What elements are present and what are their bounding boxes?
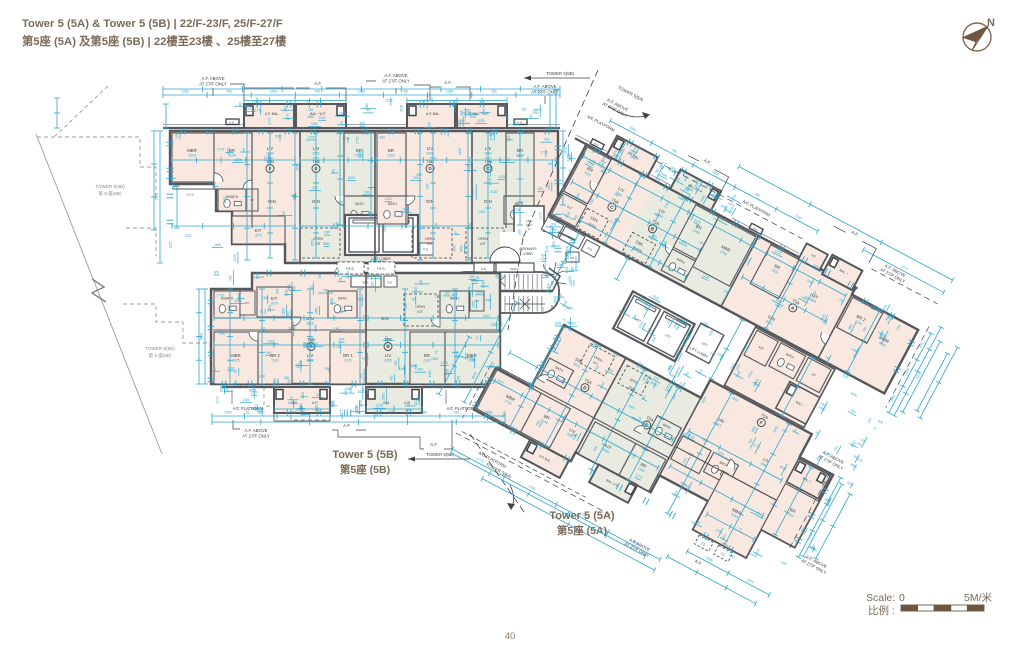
svg-text:2100: 2100 [399, 105, 403, 112]
svg-text:2100: 2100 [456, 351, 460, 358]
svg-text:2650: 2650 [491, 323, 498, 327]
svg-text:1960: 1960 [399, 367, 406, 371]
svg-text:2300: 2300 [382, 393, 386, 400]
svg-text:2325: 2325 [232, 359, 240, 363]
svg-text:A.F.: A.F. [314, 81, 321, 86]
svg-text:2650: 2650 [452, 244, 456, 251]
svg-text:430: 430 [247, 107, 253, 111]
svg-text:2650: 2650 [299, 403, 303, 410]
svg-text:250: 250 [324, 231, 330, 235]
svg-text:1960: 1960 [218, 331, 225, 335]
svg-text:2100: 2100 [569, 238, 576, 242]
svg-text:745: 745 [435, 295, 441, 299]
svg-text:1333: 1333 [565, 266, 569, 273]
svg-text:1775: 1775 [489, 133, 493, 140]
svg-text:M.BATH: M.BATH [226, 195, 239, 199]
svg-text:1333: 1333 [483, 314, 490, 318]
svg-text:1960: 1960 [446, 90, 454, 94]
svg-text:2650: 2650 [552, 241, 556, 248]
svg-text:1775: 1775 [268, 118, 272, 125]
svg-text:1775: 1775 [422, 99, 429, 103]
svg-text:2300: 2300 [188, 154, 196, 158]
svg-text:250: 250 [444, 291, 450, 295]
svg-text:300: 300 [551, 222, 557, 226]
svg-text:3650: 3650 [314, 307, 318, 314]
svg-text:3650: 3650 [310, 239, 314, 246]
svg-text:1500: 1500 [372, 274, 379, 278]
svg-text:780: 780 [453, 411, 459, 415]
svg-text:780: 780 [226, 90, 232, 94]
svg-text:745: 745 [308, 108, 314, 112]
svg-text:1500: 1500 [284, 289, 288, 296]
svg-text:A.F.: A.F. [444, 80, 451, 85]
svg-text:2375: 2375 [186, 193, 194, 197]
svg-text:2300: 2300 [234, 380, 238, 387]
svg-text:1775: 1775 [545, 270, 549, 277]
svg-text:比例 :: 比例 : [868, 604, 895, 617]
svg-text:AT 27/F ONLY: AT 27/F ONLY [531, 90, 559, 95]
svg-text:5M/米: 5M/米 [964, 591, 993, 604]
svg-text:1775: 1775 [256, 272, 260, 279]
svg-text:A.F. ABOVE: A.F. ABOVE [384, 73, 407, 78]
svg-text:1775: 1775 [217, 294, 224, 298]
svg-text:1500: 1500 [476, 290, 483, 294]
svg-text:1960: 1960 [270, 90, 278, 94]
svg-text:1775: 1775 [286, 113, 290, 120]
svg-text:3650: 3650 [323, 242, 330, 246]
svg-text:1333: 1333 [498, 175, 505, 179]
svg-text:P.D.: P.D. [570, 256, 575, 260]
svg-text:3650: 3650 [428, 122, 432, 129]
svg-text:900: 900 [425, 183, 429, 189]
svg-text:300: 300 [284, 376, 290, 380]
svg-text:150: 150 [246, 409, 250, 415]
svg-text:1333: 1333 [288, 401, 295, 405]
svg-text:300: 300 [359, 373, 363, 379]
svg-text:300: 300 [370, 212, 374, 218]
svg-text:900: 900 [541, 307, 545, 313]
svg-text:BR: BR [424, 353, 430, 358]
svg-text:2300: 2300 [565, 246, 569, 253]
svg-text:300: 300 [214, 271, 220, 275]
svg-text:T.R.S.: T.R.S. [377, 267, 386, 271]
svg-text:KIT: KIT [480, 242, 485, 246]
svg-text:1150: 1150 [223, 196, 227, 203]
svg-text:745: 745 [364, 191, 370, 195]
svg-text:430: 430 [335, 222, 339, 228]
svg-text:750: 750 [403, 90, 409, 94]
svg-text:第5座 (5B): 第5座 (5B) [340, 463, 390, 476]
svg-text:1775: 1775 [488, 178, 492, 185]
svg-text:P.D.: P.D. [423, 248, 429, 252]
svg-text:AT 27/F ONLY: AT 27/F ONLY [242, 434, 270, 439]
svg-text:0: 0 [899, 592, 905, 604]
svg-text:3650: 3650 [357, 297, 364, 301]
svg-text:205: 205 [541, 257, 547, 261]
svg-text:UT: UT [245, 301, 249, 305]
svg-text:3650: 3650 [340, 306, 344, 313]
svg-text:205: 205 [276, 289, 280, 295]
svg-text:1775: 1775 [505, 113, 509, 120]
svg-text:1775: 1775 [546, 245, 550, 252]
svg-text:3650: 3650 [384, 359, 392, 363]
svg-text:2255: 2255 [181, 90, 189, 94]
svg-text:750: 750 [315, 90, 321, 94]
svg-text:OPEN: OPEN [313, 237, 323, 241]
svg-text:U.P.: U.P. [312, 401, 318, 405]
svg-text:BATH: BATH [338, 297, 347, 301]
svg-text:LIV: LIV [427, 146, 434, 151]
svg-text:第5座 (5A) 及第5座 (5B) | 22樓至23樓 、: 第5座 (5A) 及第5座 (5B) | 22樓至23樓 、25樓至27樓 [22, 34, 287, 48]
svg-text:MBR: MBR [231, 353, 241, 358]
svg-text:第 6 座(6B): 第 6 座(6B) [149, 352, 172, 359]
svg-text:1333: 1333 [385, 335, 389, 342]
svg-text:1775: 1775 [540, 150, 547, 154]
svg-text:1333: 1333 [556, 160, 560, 167]
svg-text:1333: 1333 [184, 234, 191, 238]
svg-text:Scale:: Scale: [866, 592, 895, 604]
svg-text:745: 745 [568, 326, 572, 332]
svg-text:A.F.: A.F. [343, 423, 350, 428]
svg-text:780: 780 [451, 293, 455, 299]
svg-text:2100: 2100 [271, 359, 279, 363]
svg-text:900: 900 [266, 351, 272, 355]
svg-text:1225: 1225 [169, 241, 173, 248]
svg-text:UT: UT [475, 299, 479, 303]
svg-text:Tower 5 (5B): Tower 5 (5B) [332, 449, 398, 461]
svg-text:1333: 1333 [376, 404, 383, 408]
svg-text:4250: 4250 [225, 411, 233, 415]
svg-text:'A': 'A' [527, 227, 531, 231]
svg-text:BATH: BATH [388, 202, 397, 206]
svg-text:KIT: KIT [271, 296, 278, 301]
svg-text:1400: 1400 [286, 311, 290, 318]
svg-text:75: 75 [260, 310, 264, 314]
svg-text:780: 780 [491, 90, 497, 94]
svg-text:TOWER 6(6B): TOWER 6(6B) [145, 346, 175, 351]
svg-text:1775: 1775 [570, 260, 577, 264]
svg-text:1333: 1333 [288, 326, 295, 330]
svg-text:1500: 1500 [274, 135, 281, 139]
svg-text:1150: 1150 [445, 368, 449, 375]
svg-text:U.P. BAL.: U.P. BAL. [265, 112, 280, 116]
svg-text:第 6 座(6B): 第 6 座(6B) [99, 190, 122, 197]
svg-text:1150: 1150 [458, 148, 462, 155]
svg-text:Tower 5 (5A) & Tower 5 (5B) |: Tower 5 (5A) & Tower 5 (5B) | 22/F-23/F,… [22, 18, 283, 30]
svg-text:2100: 2100 [490, 190, 497, 194]
svg-text:2650: 2650 [458, 119, 462, 126]
svg-text:900: 900 [517, 229, 521, 235]
svg-text:OPEN: OPEN [415, 305, 425, 309]
svg-text:MBR: MBR [187, 148, 197, 153]
svg-text:75: 75 [367, 108, 371, 112]
svg-text:1980: 1980 [420, 411, 428, 415]
svg-text:第5座 (5A): 第5座 (5A) [557, 524, 607, 537]
svg-text:1960: 1960 [362, 357, 369, 361]
svg-text:TOWER 6(6B): TOWER 6(6B) [95, 184, 125, 189]
svg-text:1225: 1225 [385, 99, 392, 103]
svg-text:205: 205 [339, 338, 345, 342]
svg-text:3650: 3650 [460, 245, 464, 252]
svg-text:1150: 1150 [569, 153, 573, 160]
svg-text:2650: 2650 [431, 357, 438, 361]
svg-text:1500: 1500 [547, 183, 551, 190]
svg-text:1225: 1225 [227, 147, 231, 154]
svg-text:1400: 1400 [214, 243, 221, 247]
svg-text:2300: 2300 [387, 154, 395, 158]
svg-text:AT 27/F ONLY: AT 27/F ONLY [199, 82, 227, 87]
svg-text:2650: 2650 [268, 305, 272, 312]
svg-text:BATH: BATH [355, 202, 364, 206]
svg-text:P.D.: P.D. [387, 281, 392, 285]
svg-text:2100: 2100 [251, 407, 258, 411]
svg-text:KIT: KIT [427, 242, 432, 246]
svg-text:H.R.: H.R. [481, 267, 487, 271]
svg-text:2650: 2650 [367, 273, 371, 280]
svg-text:OPEN: OPEN [425, 237, 435, 241]
svg-text:430: 430 [229, 275, 233, 281]
svg-text:1960: 1960 [557, 263, 564, 267]
svg-text:300: 300 [405, 408, 411, 412]
svg-text:2100: 2100 [344, 359, 352, 363]
svg-text:745: 745 [316, 393, 322, 397]
svg-text:2650: 2650 [414, 287, 418, 294]
svg-text:1775: 1775 [307, 136, 314, 140]
svg-text:150: 150 [505, 158, 511, 162]
svg-text:A.F. ABOVE: A.F. ABOVE [533, 84, 556, 89]
svg-text:1500: 1500 [287, 379, 291, 386]
svg-text:300: 300 [331, 400, 335, 406]
svg-text:1225: 1225 [414, 398, 418, 405]
svg-text:2650: 2650 [566, 307, 573, 311]
svg-text:1775: 1775 [342, 137, 349, 141]
svg-text:DIN: DIN [381, 316, 388, 321]
svg-text:900: 900 [471, 189, 475, 195]
svg-text:150: 150 [296, 363, 300, 369]
svg-text:TOWER 5(5B): TOWER 5(5B) [546, 71, 575, 76]
svg-text:1333: 1333 [238, 293, 242, 300]
svg-text:1225: 1225 [233, 254, 237, 261]
svg-text:W.M.C.: W.M.C. [510, 267, 519, 271]
svg-text:2650: 2650 [172, 181, 176, 188]
svg-text:75: 75 [314, 342, 318, 346]
svg-text:1225: 1225 [441, 361, 448, 365]
svg-text:1225: 1225 [477, 119, 484, 123]
svg-text:1960: 1960 [415, 173, 422, 177]
svg-text:3650: 3650 [471, 279, 478, 283]
svg-text:150: 150 [334, 327, 340, 331]
svg-text:430: 430 [380, 136, 386, 140]
svg-text:1225: 1225 [359, 400, 363, 407]
svg-text:1333: 1333 [267, 339, 274, 343]
svg-text:T.R.S.: T.R.S. [346, 267, 355, 271]
svg-text:2300: 2300 [339, 112, 346, 116]
svg-text:430: 430 [390, 375, 394, 381]
svg-text:1150: 1150 [311, 122, 318, 126]
svg-text:745: 745 [568, 276, 572, 282]
svg-text:1150: 1150 [296, 163, 300, 170]
svg-text:75: 75 [476, 336, 480, 340]
svg-text:1225: 1225 [569, 168, 576, 172]
svg-text:DIN: DIN [426, 199, 433, 204]
svg-text:1333: 1333 [478, 210, 485, 214]
svg-text:LOBBY: LOBBY [523, 252, 535, 256]
svg-text:430: 430 [404, 303, 408, 309]
svg-text:Tower 5 (5A): Tower 5 (5A) [549, 510, 615, 522]
svg-text:1775: 1775 [217, 148, 224, 152]
svg-text:KIT: KIT [417, 310, 422, 314]
svg-text:A.K.: A.K. [517, 121, 523, 125]
svg-text:1960: 1960 [371, 281, 375, 288]
svg-text:780: 780 [515, 208, 521, 212]
svg-text:1675: 1675 [254, 234, 262, 238]
svg-text:780: 780 [464, 109, 470, 113]
svg-text:1400: 1400 [301, 392, 305, 399]
svg-text:1500: 1500 [467, 286, 471, 293]
svg-text:780: 780 [323, 289, 329, 293]
svg-text:A.F. ABOVE: A.F. ABOVE [201, 76, 224, 81]
svg-text:1400: 1400 [374, 256, 378, 263]
svg-text:2300: 2300 [383, 225, 387, 232]
svg-text:1150: 1150 [481, 281, 485, 288]
svg-text:KIT: KIT [255, 228, 262, 233]
svg-text:1150: 1150 [402, 208, 409, 212]
svg-text:BR: BR [388, 148, 394, 153]
svg-text:2100: 2100 [258, 375, 265, 379]
svg-text:1333: 1333 [485, 165, 489, 172]
svg-text:205: 205 [538, 187, 544, 191]
svg-text:75: 75 [234, 370, 238, 374]
svg-text:DIN: DIN [268, 199, 275, 204]
svg-text:2300: 2300 [472, 300, 476, 307]
svg-text:OPEN: OPEN [478, 237, 488, 241]
svg-text:430: 430 [417, 368, 423, 372]
svg-text:1500: 1500 [569, 322, 576, 326]
svg-text:U.P. BAL.: U.P. BAL. [426, 112, 441, 116]
svg-text:1500: 1500 [273, 378, 277, 385]
svg-text:A.K.: A.K. [229, 121, 235, 125]
svg-text:900: 900 [264, 156, 268, 162]
svg-text:430: 430 [175, 132, 179, 138]
svg-text:205: 205 [569, 280, 573, 286]
svg-text:1500: 1500 [357, 390, 364, 394]
svg-text:75: 75 [310, 286, 314, 290]
svg-text:2100: 2100 [423, 359, 431, 363]
svg-text:150: 150 [312, 186, 318, 190]
svg-text:900: 900 [497, 274, 503, 278]
svg-text:2100: 2100 [563, 147, 567, 154]
svg-text:2300: 2300 [348, 176, 355, 180]
svg-text:UP: UP [550, 305, 554, 309]
svg-text:1960: 1960 [566, 252, 570, 259]
svg-text:2650: 2650 [330, 298, 334, 305]
svg-text:1500: 1500 [262, 296, 269, 300]
svg-text:780: 780 [394, 360, 398, 366]
svg-text:1333: 1333 [314, 325, 318, 332]
svg-text:A.F.: A.F. [430, 442, 437, 447]
svg-text:A.F. ABOVE: A.F. ABOVE [244, 428, 267, 433]
svg-text:40: 40 [505, 631, 516, 642]
svg-text:1775: 1775 [339, 409, 343, 416]
svg-text:1225: 1225 [358, 151, 362, 158]
svg-text:LIV: LIV [385, 353, 392, 358]
svg-text:1333: 1333 [251, 100, 258, 104]
svg-text:1150: 1150 [554, 322, 561, 326]
svg-text:BR 1: BR 1 [343, 353, 353, 358]
svg-text:1150: 1150 [428, 370, 432, 377]
svg-text:2100: 2100 [385, 197, 392, 201]
svg-text:1400: 1400 [467, 165, 471, 172]
svg-text:1775: 1775 [216, 396, 220, 403]
svg-text:150: 150 [521, 107, 527, 111]
svg-text:N: N [987, 17, 995, 29]
svg-text:2650: 2650 [307, 115, 314, 119]
svg-text:AT 27/F ONLY: AT 27/F ONLY [382, 79, 410, 84]
svg-text:75: 75 [435, 350, 439, 354]
svg-text:150: 150 [318, 273, 322, 279]
svg-text:745: 745 [544, 138, 550, 142]
svg-text:150: 150 [546, 283, 550, 289]
svg-text:1150: 1150 [319, 116, 326, 120]
svg-text:1775: 1775 [255, 109, 262, 113]
svg-text:1775: 1775 [539, 212, 543, 219]
svg-text:150: 150 [543, 263, 547, 269]
svg-text:150: 150 [457, 376, 461, 382]
svg-text:300: 300 [533, 109, 539, 113]
svg-text:1775: 1775 [356, 137, 360, 144]
svg-text:FIREMAN'S: FIREMAN'S [519, 247, 536, 251]
svg-text:1225: 1225 [234, 158, 241, 162]
svg-text:2194: 2194 [322, 411, 330, 415]
svg-text:1150: 1150 [491, 362, 495, 369]
svg-text:2300: 2300 [227, 366, 234, 370]
svg-text:2100: 2100 [346, 271, 350, 278]
svg-text:2300: 2300 [251, 391, 258, 395]
svg-text:2650: 2650 [465, 352, 469, 359]
svg-text:430: 430 [359, 122, 365, 126]
svg-text:1333: 1333 [242, 398, 249, 402]
